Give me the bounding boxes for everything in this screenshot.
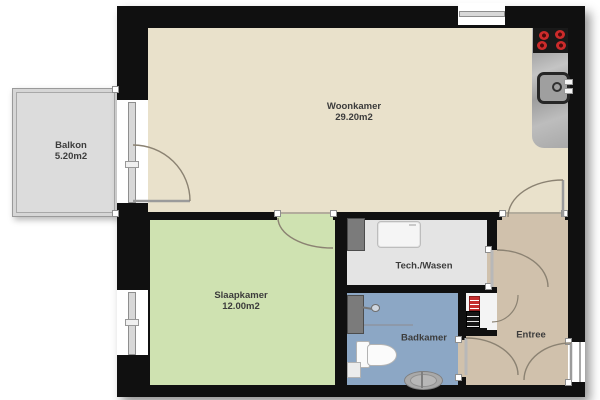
balcony-anchor-marker [112,210,119,217]
room-entree [497,218,568,385]
washbasin-icon [347,362,361,378]
wall-junction-marker [485,283,492,290]
tech-wasen-label: Tech./Wasen [395,261,452,272]
balcony-anchor-marker [112,86,119,93]
opening-badkamer-door [458,340,466,377]
bath-sink-divider [421,371,423,388]
front-door-frame-left [570,342,572,382]
wall-junction-marker [274,210,281,217]
tech-cabinet [347,218,365,251]
faucet-icon [564,88,573,94]
burner-icon [537,41,547,50]
opening-meterkast-door [487,293,497,330]
window-balcony-mullion [125,161,139,168]
wall-tech-south [335,285,497,293]
woonkamer-label: Woonkamer 29.20m2 [327,101,381,123]
shower-screen-line [364,324,413,326]
room-name: Badkamer [401,333,447,344]
room-name: Balkon [55,140,87,151]
wall-junction-marker [565,379,572,386]
wall-meterkast-south [458,328,487,336]
slaapkamer-label: Slaapkamer 12.00m2 [214,290,267,312]
wall-junction-marker [455,336,462,343]
room-name: Tech./Wasen [395,261,452,272]
badkamer-label: Badkamer [401,333,447,344]
electrical-panel-icon [466,311,480,328]
burner-icon [539,31,549,40]
sink-drain-icon [552,82,562,92]
opening-tech-door [487,250,497,287]
opening-woonkamer-entree [502,212,565,222]
window-slaapkamer-mullion [125,319,139,326]
front-door-frame-right [579,342,581,382]
room-entree-extension [466,336,497,385]
wall-slaapkamer-east [335,212,347,388]
balkon-label: Balkon 5.20m2 [55,140,87,162]
floorplan-canvas: Balkon 5.20m2 Woonkamer 29.20m2 Slaapkam… [0,0,600,400]
burner-icon [556,41,566,50]
window-top-glass [459,11,505,17]
wall-junction-marker [561,210,568,217]
room-name: Slaapkamer [214,290,267,301]
room-area: 12.00m2 [214,301,267,312]
entree-label: Entree [516,330,546,341]
opening-slaapkamer-door [277,212,333,222]
wall-junction-marker [455,374,462,381]
wall-junction-marker [565,338,572,345]
window-balcony-glass [128,102,136,203]
shower-head-icon [371,304,380,312]
washing-machine-handle [409,224,416,226]
room-area: 29.20m2 [327,112,381,123]
room-area: 5.20m2 [55,151,87,162]
shower-partition [347,295,364,334]
room-name: Woonkamer [327,101,381,112]
stove-icon [533,28,568,53]
burner-icon [555,30,565,39]
bath-sink-basin [410,374,437,387]
room-name: Entree [516,330,546,341]
wall-junction-marker [499,210,506,217]
faucet-icon [564,79,573,85]
wall-junction-marker [330,210,337,217]
wall-junction-marker [485,246,492,253]
red-meter-unit-icon [469,296,480,311]
